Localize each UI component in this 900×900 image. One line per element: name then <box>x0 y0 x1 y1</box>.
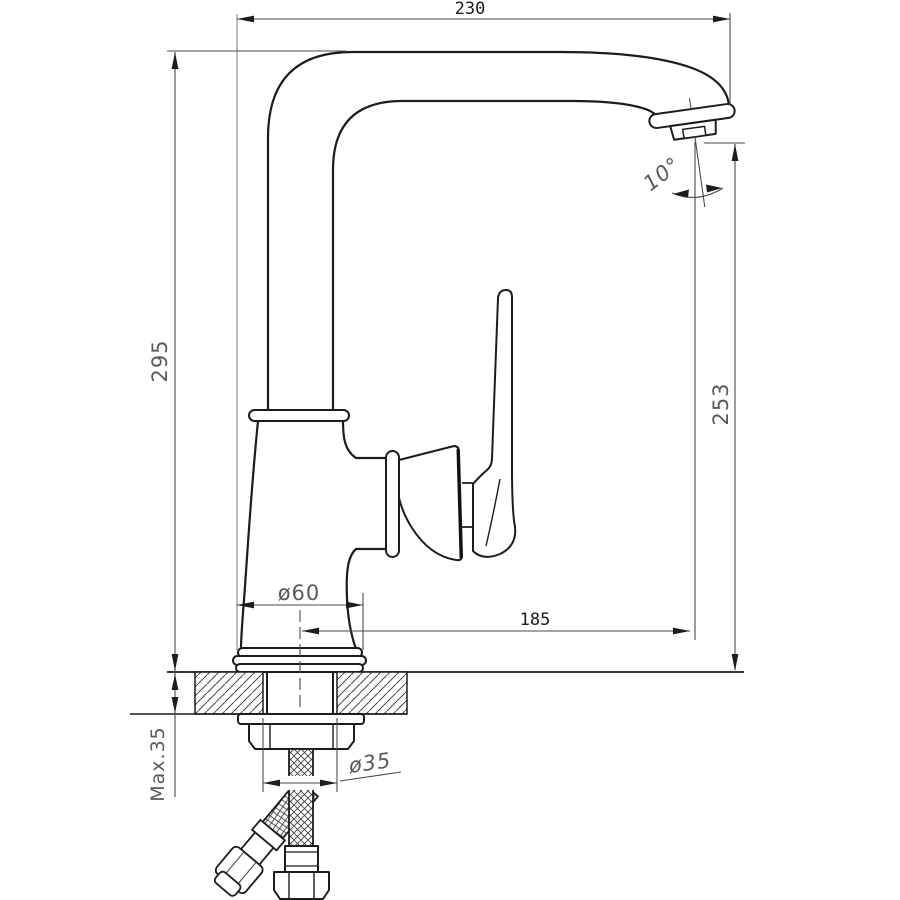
dim-253-arrow-bottom <box>732 654 739 671</box>
dimension-253: 253 <box>704 143 745 671</box>
dim-230-arrow-left <box>237 16 254 23</box>
spout-aerator <box>647 92 747 213</box>
dimension-max35: Max.35 <box>147 674 178 802</box>
faucet-dimension-drawing: 230 295 Max.35 253 185 ø60 <box>0 0 900 900</box>
angle-arrow-right <box>706 185 722 193</box>
dim-253-arrow-top <box>732 144 739 161</box>
dim-230-arrow-right <box>713 16 730 23</box>
dim-max35-arrow-down <box>172 697 179 713</box>
hose-ferrule <box>285 846 318 872</box>
dim-230-label: 230 <box>455 0 486 19</box>
handle-lever <box>473 290 515 557</box>
countertop-slab-right <box>337 672 407 714</box>
dim-185-arrow-left <box>302 628 319 635</box>
countertop-slab-left <box>195 672 263 714</box>
tube-collar <box>249 410 349 421</box>
body-right-upper-edge <box>343 421 387 458</box>
angle-label: 10° <box>639 152 685 196</box>
dim-295-arrow-top <box>172 52 179 69</box>
dim-60-label: ø60 <box>278 581 321 605</box>
dim-60-arrow-left <box>237 602 254 609</box>
dim-253-label: 253 <box>709 382 733 425</box>
dim-max35-arrow-up <box>172 674 179 690</box>
faucet-body <box>233 52 729 672</box>
dim-185-label: 185 <box>520 610 551 630</box>
dim-35-label: ø35 <box>346 748 392 778</box>
dim-35-arrow-left <box>263 780 280 787</box>
countertop <box>130 672 744 714</box>
handle-bonnet-cone <box>399 446 462 560</box>
dim-35-arrow-right <box>320 780 337 787</box>
mounting-washer <box>238 714 364 724</box>
hose-braid <box>289 749 313 846</box>
mounting-nut <box>249 724 354 749</box>
hose-end-nut <box>274 872 329 899</box>
dim-60-arrow-right <box>346 602 363 609</box>
annotation-angle-10: 10° <box>639 152 723 197</box>
dim-295-label: 295 <box>148 339 172 382</box>
body-right-lower-edge <box>347 549 356 649</box>
body-left-edge <box>241 421 258 649</box>
dim-max35-label: Max.35 <box>147 726 169 802</box>
dim-185-arrow-right <box>673 628 690 635</box>
handle-hub <box>462 483 473 527</box>
dim-295-arrow-bottom <box>172 654 179 671</box>
technical-drawing-page: 230 295 Max.35 253 185 ø60 <box>0 0 900 900</box>
cartridge-ring <box>386 451 399 557</box>
